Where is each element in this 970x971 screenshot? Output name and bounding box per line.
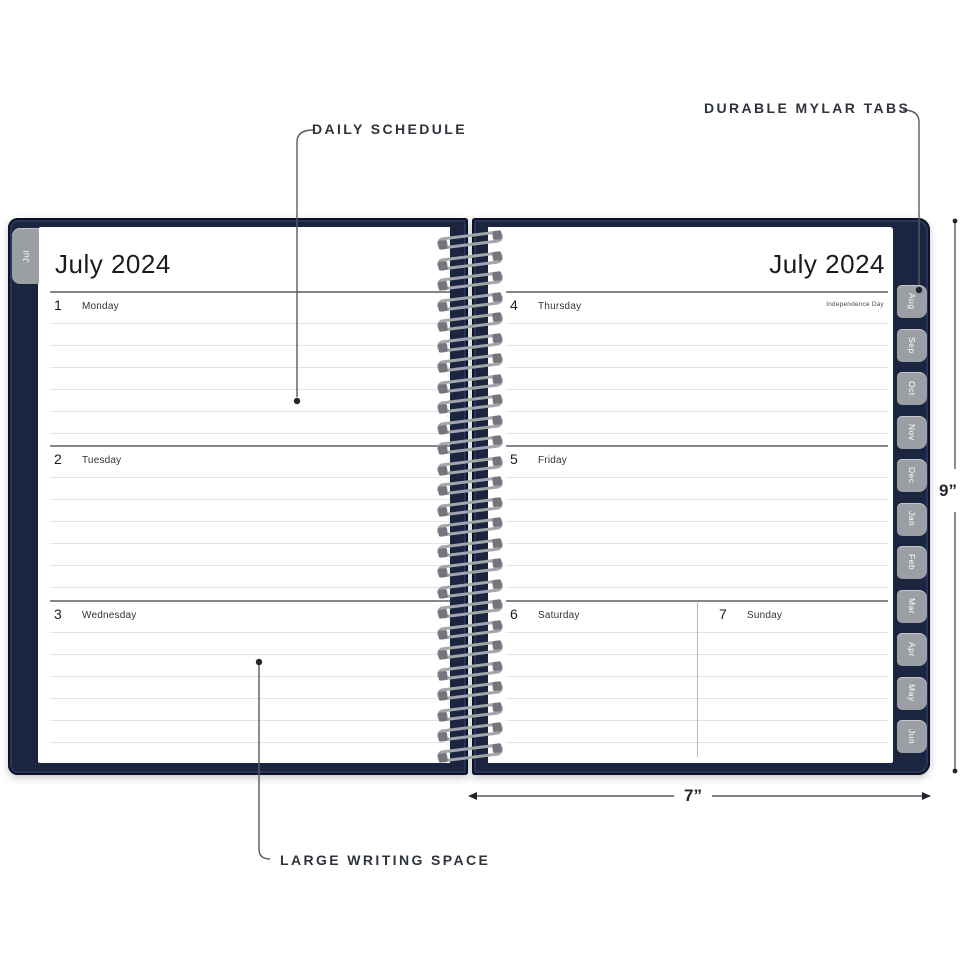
ruled-line [50,345,450,346]
month-tabs-column: AugSepOctNovDecJanFebMarAprMayJun [897,285,927,753]
month-tab-jan: Jan [897,503,927,536]
ruled-line [50,433,450,434]
wire-loop [437,456,504,476]
day-name: Tuesday [82,455,121,466]
month-tab-label: Feb [907,554,917,570]
month-tab-sep: Sep [897,329,927,362]
day-name: Friday [538,455,567,466]
day-name: Monday [82,301,119,312]
ruled-line [506,389,888,390]
wire-loop [437,538,504,558]
annotation-daily-schedule: DAILY SCHEDULE [312,121,467,137]
planner-page-right: July 2024 4 Thursday Independence Day 5 … [488,227,893,763]
month-tab-label: Jan [907,511,917,526]
month-tab-aug: Aug [897,285,927,318]
ruled-line [50,367,450,368]
wire-loop [437,661,504,681]
day-name: Wednesday [82,610,136,621]
wire-loop [437,415,504,435]
day-number: 5 [510,451,518,467]
month-tab-jun: Jun [897,720,927,753]
day-name: Thursday [538,301,581,312]
wire-loop [437,722,504,742]
ruled-line [50,587,450,588]
annotation-large-writing-space: LARGE WRITING SPACE [280,852,490,868]
month-tab-dec: Dec [897,459,927,492]
month-tab-may: May [897,677,927,710]
wire-loop [437,640,504,660]
dimension-width-label: 7” [684,786,702,806]
page-title-right: July 2024 [769,249,885,280]
wire-loop [437,579,504,599]
wire-loop [437,251,504,271]
day-section-wednesday: 3 Wednesday [50,600,450,765]
month-tab-feb: Feb [897,546,927,579]
ruled-line [506,323,888,324]
planner-page-left: July 2024 1 Monday 2 Tuesday 3 Wednesday [38,227,450,763]
wire-loop [437,333,504,353]
wire-loop [437,353,504,373]
month-tab-label: Mar [907,598,917,614]
ruled-line [506,543,888,544]
month-tab-label: Sep [907,337,917,354]
day-number: 6 [510,606,518,622]
day-section-monday: 1 Monday [50,291,450,447]
day-number: 1 [54,297,62,313]
month-tab-jul-label: Jul [21,250,31,262]
page-title-left: July 2024 [55,249,171,280]
ruled-line [506,587,888,588]
wire-loop [437,435,504,455]
day-section-tuesday: 2 Tuesday [50,445,450,602]
month-tab-label: May [907,684,917,702]
wire-loop [437,743,504,763]
ruled-line [50,543,450,544]
wire-loop [437,497,504,517]
wire-loop [437,620,504,640]
annotation-durable-mylar-tabs: DURABLE MYLAR TABS [704,100,910,116]
day-section-thursday: 4 Thursday Independence Day [506,291,888,447]
ruled-line [50,565,450,566]
day-number: 2 [54,451,62,467]
ruled-line [50,477,450,478]
wire-loop [437,374,504,394]
ruled-line [50,521,450,522]
ruled-line [50,389,450,390]
month-tab-apr: Apr [897,633,927,666]
month-tab-label: Apr [907,642,917,657]
wire-loop [437,230,504,250]
day-number: 3 [54,606,62,622]
month-tab-label: Jun [907,729,917,744]
month-tab-nov: Nov [897,416,927,449]
ruled-line [506,477,888,478]
ruled-line [50,323,450,324]
month-tab-label: Oct [907,381,917,396]
wire-loop [437,681,504,701]
ruled-line [50,698,450,699]
weekend-column-divider [697,601,698,757]
holiday-note: Independence Day [826,301,884,308]
month-tab-label: Nov [907,424,917,441]
month-tab-oct: Oct [897,372,927,405]
wire-loop [437,476,504,496]
day-name: Sunday [747,610,782,621]
day-name: Saturday [538,610,580,621]
ruled-line [50,499,450,500]
month-tab-label: Aug [907,293,917,310]
month-tab-mar: Mar [897,590,927,623]
ruled-line [50,720,450,721]
wire-loop [437,292,504,312]
day-number: 4 [510,297,518,313]
ruled-line [50,742,450,743]
ruled-line [506,367,888,368]
day-section-sunday: 7 Sunday [715,602,905,632]
month-tab-label: Dec [907,467,917,484]
dimension-height-label: 9” [939,481,957,501]
wire-loop [437,558,504,578]
day-section-friday: 5 Friday [506,445,888,602]
wire-loop [437,517,504,537]
wire-loop [437,312,504,332]
wire-loop [437,702,504,722]
wire-loop [437,271,504,291]
ruled-line [506,345,888,346]
day-number: 7 [719,606,727,622]
ruled-line [506,411,888,412]
ruled-line [506,565,888,566]
ruled-line [50,411,450,412]
wire-loop [437,599,504,619]
ruled-line [506,499,888,500]
ruled-line [506,521,888,522]
ruled-line [506,433,888,434]
ruled-line [50,676,450,677]
ruled-line [50,632,450,633]
wire-loop [437,394,504,414]
spiral-binding [437,234,503,774]
ruled-line [50,654,450,655]
month-tab-jul: Jul [12,228,39,284]
